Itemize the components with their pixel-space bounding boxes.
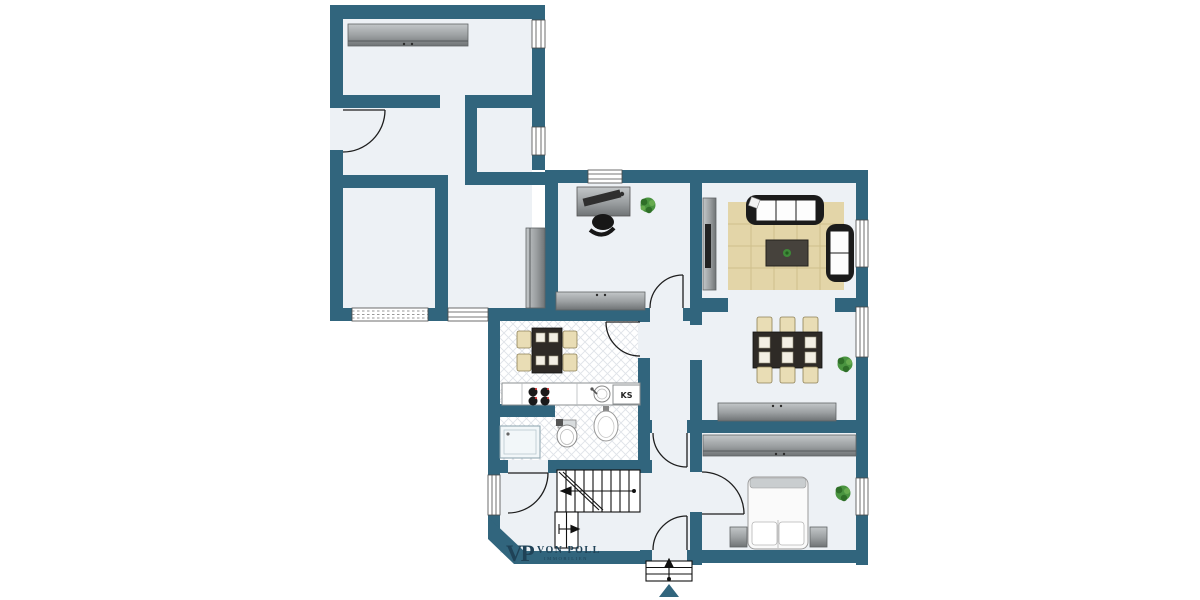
- window-stairs: [488, 475, 500, 515]
- window-office: [588, 170, 622, 183]
- bedroom-wardrobe: [703, 435, 856, 456]
- logo-monogram: VP: [506, 541, 535, 566]
- window-balcony-hatched: [352, 308, 428, 321]
- sofa-three-seater: [746, 195, 824, 225]
- fridge: KS: [613, 385, 640, 404]
- dining-chairs-top: [757, 317, 818, 333]
- window-topleft-right-2: [532, 127, 545, 155]
- dining-sideboard: [718, 403, 836, 421]
- window-living: [856, 220, 868, 267]
- window-topleft-right-1: [532, 20, 545, 48]
- tv-board: [703, 198, 716, 290]
- office-desk: [577, 187, 630, 216]
- bed: [748, 477, 808, 549]
- pillow-left: [752, 522, 777, 545]
- entrance-steps: [646, 559, 692, 581]
- coffee-table: [766, 240, 808, 266]
- fridge-label: KS: [621, 391, 633, 400]
- window-leftblock-bottom: [448, 308, 488, 321]
- logo-name: VON POLL: [537, 545, 601, 556]
- pillow-right: [779, 522, 804, 545]
- window-bedroom: [856, 478, 868, 515]
- office-sideboard: [556, 292, 645, 310]
- dining-set: [753, 317, 822, 383]
- shower: [500, 426, 540, 458]
- sofa-two-seater: [826, 224, 854, 282]
- logo-sub: IMMOBILIEN: [544, 556, 588, 561]
- wardrobe-left-room: [526, 228, 545, 308]
- dining-chairs-bottom: [757, 367, 818, 383]
- toilet: [556, 419, 577, 447]
- entrance-arrow-marker: [659, 584, 679, 597]
- wardrobe-attic-room: [348, 24, 468, 46]
- window-dining: [856, 307, 868, 357]
- floor-plan: KS: [0, 0, 1200, 600]
- floor-plan-page: KS: [0, 0, 1200, 600]
